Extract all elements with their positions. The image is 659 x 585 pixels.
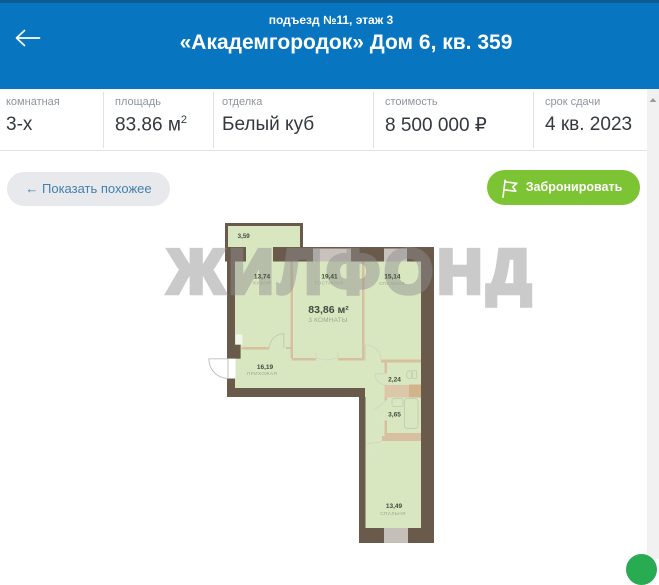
svg-text:3,65: 3,65 <box>388 412 401 419</box>
svg-text:13,74: 13,74 <box>254 274 271 281</box>
svg-text:83,86 м²: 83,86 м² <box>308 304 349 316</box>
svg-text:КУХНЯ: КУХНЯ <box>253 281 271 287</box>
svg-text:ЖИЛФОНД: ЖИЛФОНД <box>167 238 536 307</box>
svg-text:15,14: 15,14 <box>384 274 401 281</box>
svg-text:СПАЛЬНЯ: СПАЛЬНЯ <box>380 511 406 517</box>
svg-text:13,49: 13,49 <box>386 503 403 510</box>
svg-text:3 КОМНАТЫ: 3 КОМНАТЫ <box>308 317 347 324</box>
svg-text:ГОСТИНАЯ: ГОСТИНАЯ <box>315 281 344 287</box>
svg-text:СПАЛЬНЯ: СПАЛЬНЯ <box>379 281 405 287</box>
svg-text:16,19: 16,19 <box>257 364 274 371</box>
svg-text:19,41: 19,41 <box>321 274 338 281</box>
svg-text:ПРИХОЖАЯ: ПРИХОЖАЯ <box>247 371 277 377</box>
svg-text:2,24: 2,24 <box>388 377 401 384</box>
svg-text:3,59: 3,59 <box>238 233 251 240</box>
